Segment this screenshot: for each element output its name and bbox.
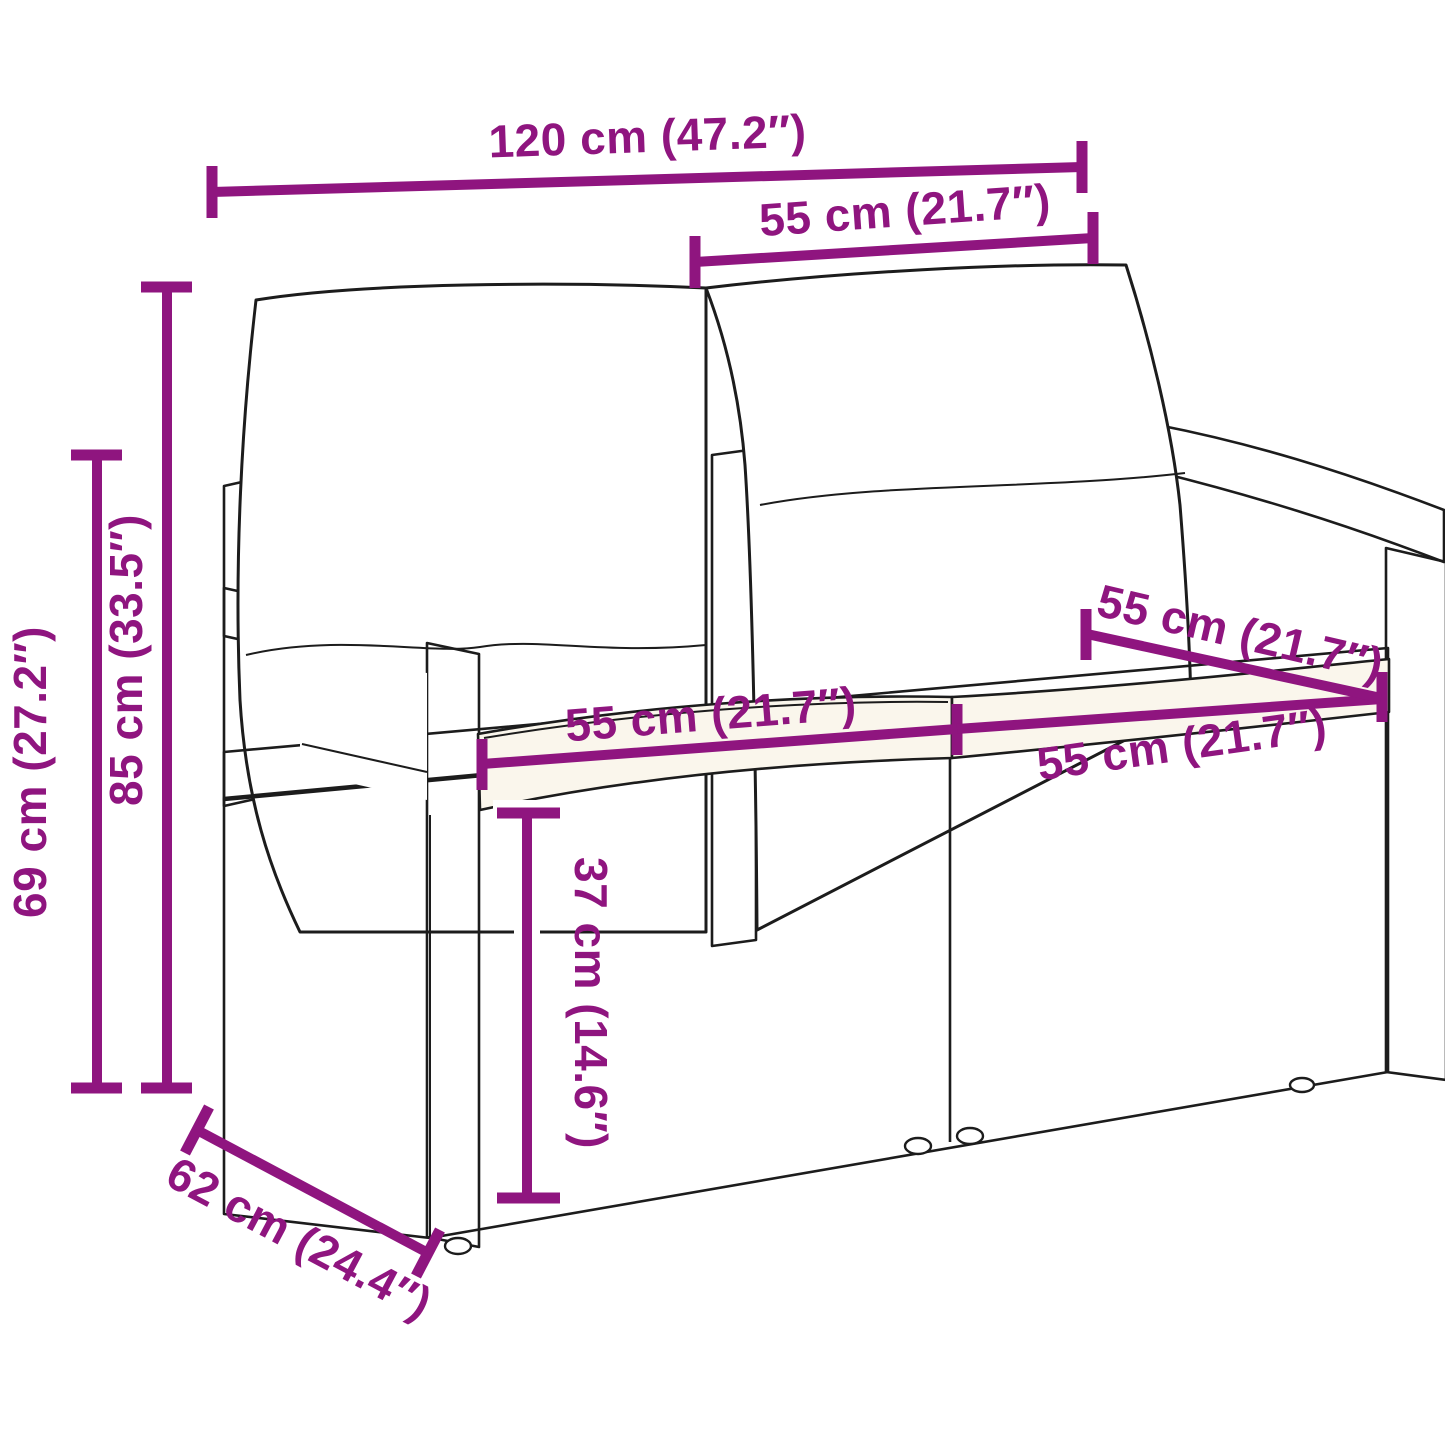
dimension-label-overall-width: 120 cm (47.2″)	[488, 104, 808, 167]
bench-dimension-diagram: 120 cm (47.2″) 55 cm (21.7″) 85 cm (33.5…	[0, 0, 1445, 1445]
right-corner-post	[1386, 548, 1445, 1080]
dimension-label-armrest-height: 69 cm (27.2″)	[4, 626, 56, 918]
dimension-label-seat-height: 37 cm (14.6″)	[565, 857, 617, 1149]
dimension-label-overall-height: 85 cm (33.5″)	[100, 514, 152, 806]
back-pillows	[238, 265, 1191, 932]
bench-drawing	[224, 265, 1445, 1254]
foot	[957, 1128, 983, 1144]
right-armrest-rail	[1158, 425, 1444, 562]
product-diagram-canvas: 120 cm (47.2″) 55 cm (21.7″) 85 cm (33.5…	[0, 0, 1445, 1445]
foot	[905, 1138, 931, 1154]
foot	[445, 1238, 471, 1254]
left-back-pillow	[238, 284, 706, 932]
dimension-overall-height: 85 cm (33.5″)	[100, 287, 192, 1088]
dimension-overall-depth: 62 cm (24.4″)	[158, 1107, 440, 1329]
foot	[1290, 1078, 1314, 1092]
dimension-label-back-cushion-width: 55 cm (21.7″)	[757, 174, 1052, 246]
